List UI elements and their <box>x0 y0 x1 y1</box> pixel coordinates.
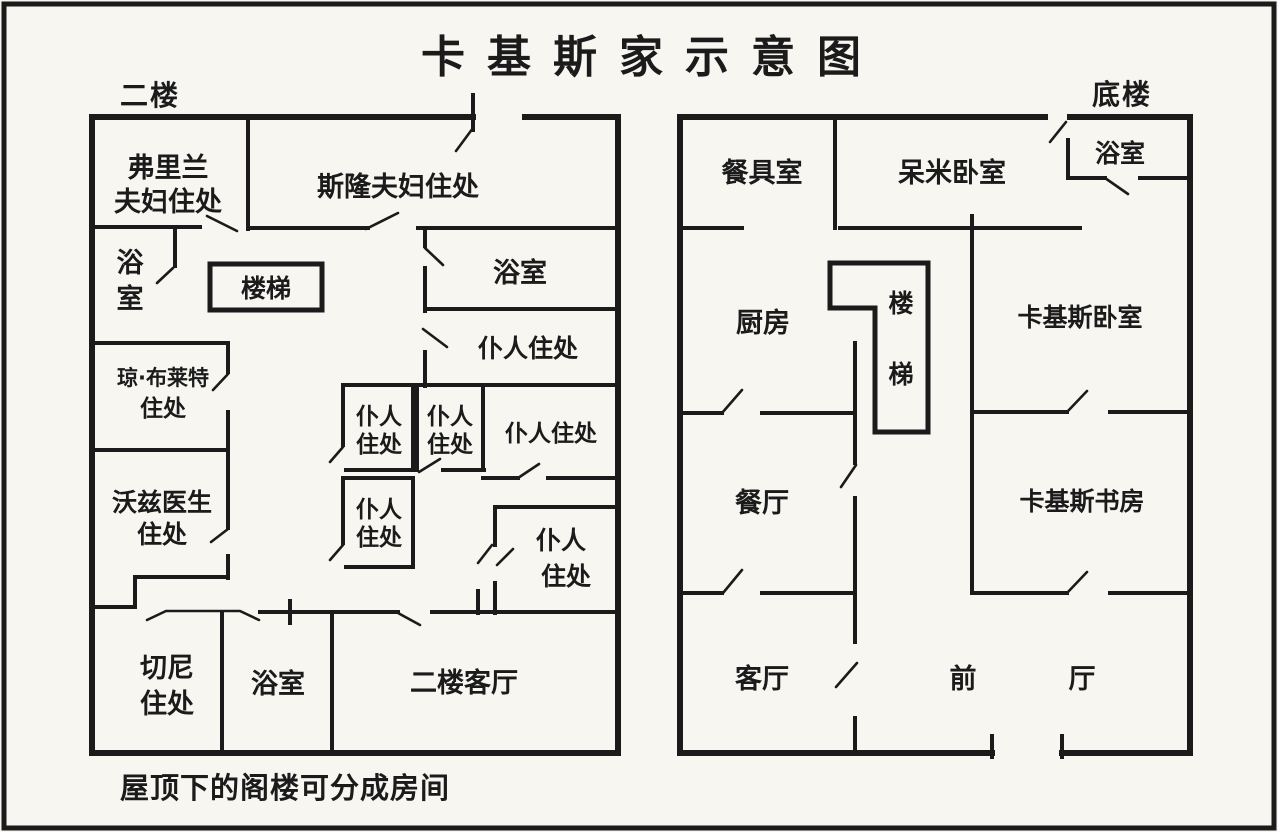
room-label-cheney-line2: 住处 <box>140 688 194 720</box>
room-label-front-hall-char1: 前 <box>950 663 977 695</box>
room-label-bath-right: 浴室 <box>493 257 547 289</box>
attic-note: 屋顶下的阁楼可分成房间 <box>120 771 450 805</box>
room-label-joan-line1: 琼·布莱特 <box>117 366 209 390</box>
room-label-freeland-line1: 弗里兰 <box>128 153 209 184</box>
second-floor-plan: 二楼 弗里兰 夫妇住处 斯隆夫妇住处 浴 室 楼梯 浴室 仆人住处 琼·布莱特 … <box>92 79 618 805</box>
room-label-khalkis-study: 卡基斯书房 <box>1019 487 1144 516</box>
room-label-wardes-line1: 沃兹医生 <box>112 488 212 517</box>
room-label-bath-bottom: 浴室 <box>251 668 305 700</box>
walls-interior-right-plan <box>680 117 1190 753</box>
room-label-stairs-2f: 楼梯 <box>241 274 291 303</box>
room-label-front-hall-char2: 厅 <box>1069 664 1096 695</box>
room-label-sloane: 斯隆夫妇住处 <box>317 171 479 203</box>
room-label-cheney-line1: 切尼 <box>140 653 194 684</box>
room-label-servant-b1-line2: 住处 <box>356 431 402 458</box>
scanned-page: 卡基斯家示意图 二楼 弗里兰 夫妇住处 斯隆夫妇住处 浴 室 楼梯 浴室 仆人住… <box>0 0 1278 832</box>
room-label-bath-left-line2: 室 <box>117 283 144 315</box>
room-label-servant-b2-line2: 住处 <box>427 431 473 458</box>
room-label-demmy-bedroom: 呆米卧室 <box>898 157 1006 189</box>
room-label-wardes-line2: 住处 <box>137 520 187 549</box>
room-label-freeland-line2: 夫妇住处 <box>114 186 222 218</box>
room-label-living-room-2f: 二楼客厅 <box>410 667 518 699</box>
room-label-pantry: 餐具室 <box>722 157 803 189</box>
room-label-khalkis-bedroom: 卡基斯卧室 <box>1017 303 1142 332</box>
ground-floor-plan: 底楼 餐具室 呆米卧室 浴室 厨房 楼 梯 卡基斯卧室 餐厅 卡基斯书房 客厅 … <box>680 78 1190 757</box>
room-label-bath-left-line1: 浴 <box>117 248 145 279</box>
door-swings-right-plan <box>722 122 1128 687</box>
room-label-servant-b2-line1: 仆人 <box>427 404 474 430</box>
walls-outer-right-plan <box>680 117 1190 753</box>
room-label-servant-c: 仆人住处 <box>505 420 597 447</box>
room-label-joan-line2: 住处 <box>140 395 186 422</box>
front-door-ticks <box>992 736 1062 757</box>
room-label-servant-d-line2: 住处 <box>356 524 402 551</box>
room-label-servant-a: 仆人住处 <box>478 334 578 363</box>
page-border <box>4 4 1274 828</box>
diagram-title: 卡基斯家示意图 <box>421 32 883 83</box>
room-label-parlor: 客厅 <box>735 663 789 695</box>
room-label-servant-d-line1: 仆人 <box>356 497 403 523</box>
room-label-servant-e-line1: 仆人 <box>536 526 586 555</box>
room-label-stairs-ground-line2: 梯 <box>888 360 913 389</box>
khalkis-house-floor-plan: 卡基斯家示意图 二楼 弗里兰 夫妇住处 斯隆夫妇住处 浴 室 楼梯 浴室 仆人住… <box>0 0 1278 832</box>
floor-label-ground: 底楼 <box>1092 78 1152 111</box>
room-label-stairs-ground-line1: 楼 <box>888 289 913 318</box>
room-label-bath-ground: 浴室 <box>1095 139 1145 168</box>
room-label-servant-b1-line1: 仆人 <box>356 404 403 430</box>
room-label-dining: 餐厅 <box>735 488 789 519</box>
room-label-servant-e-line2: 住处 <box>541 562 591 591</box>
floor-label-second: 二楼 <box>120 79 180 112</box>
room-label-kitchen: 厨房 <box>736 308 790 339</box>
